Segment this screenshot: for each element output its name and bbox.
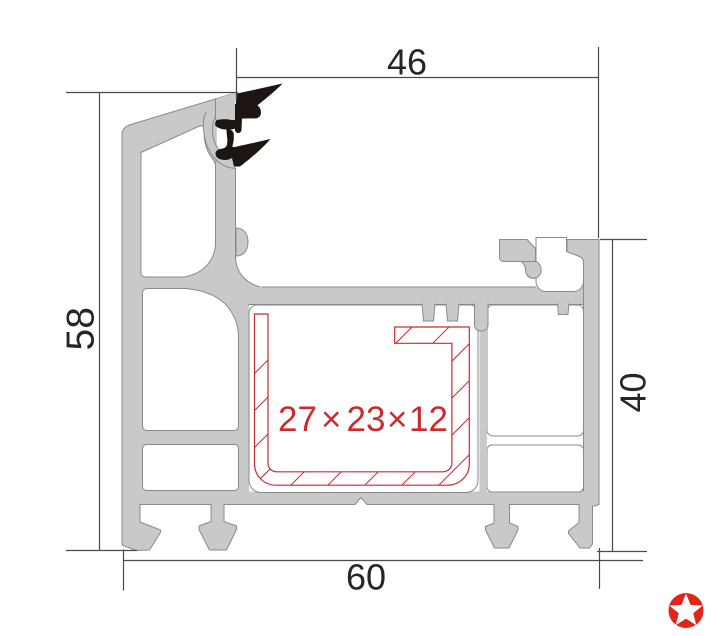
svg-text:×: × — [387, 400, 407, 439]
svg-text:23: 23 — [347, 400, 386, 439]
svg-text:27: 27 — [278, 400, 317, 439]
svg-text:46: 46 — [387, 42, 427, 83]
svg-text:58: 58 — [60, 307, 103, 350]
svg-text:×: × — [321, 400, 341, 439]
svg-text:60: 60 — [346, 557, 386, 598]
svg-text:40: 40 — [613, 372, 654, 412]
svg-text:12: 12 — [409, 400, 448, 439]
